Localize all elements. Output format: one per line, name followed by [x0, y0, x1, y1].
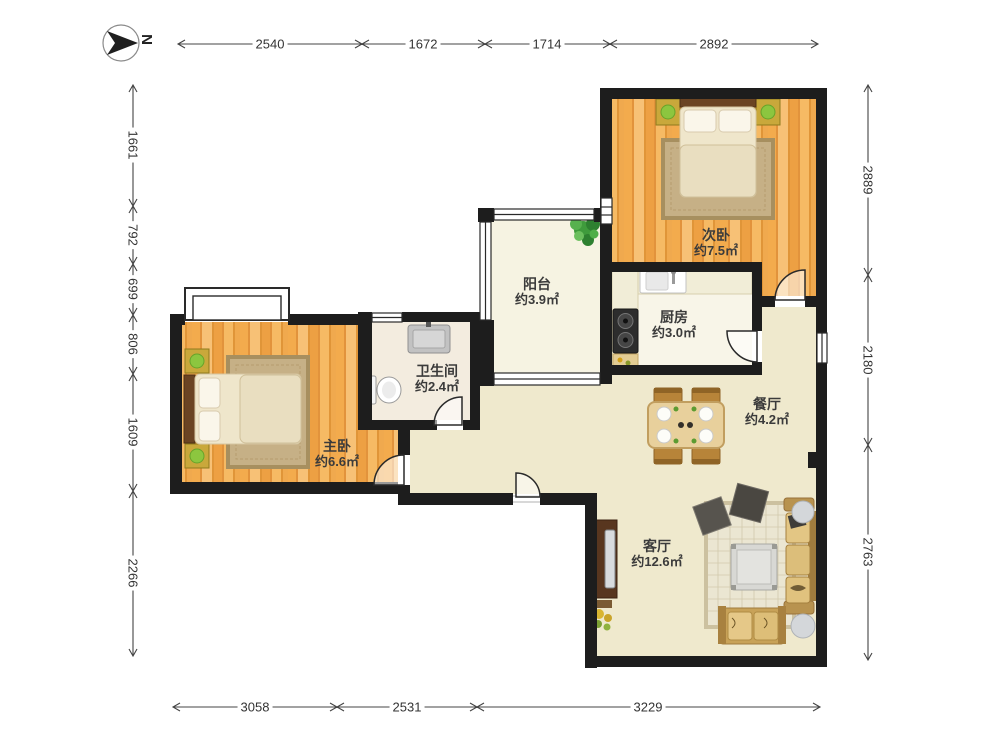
dimension-top-2: 1672 [406, 37, 441, 52]
double-bed [184, 374, 301, 444]
bathroom-window [372, 313, 402, 322]
floor-plan: N 次卧 约7.5㎡ 阳台 约3.9㎡ 厨房 约3.0㎡ 餐厅 约4.2㎡ 卫生… [0, 0, 1000, 750]
secondary-bedroom-furniture [656, 95, 780, 218]
dimension-bottom-3: 3229 [631, 700, 666, 715]
north-compass [103, 25, 139, 61]
balcony-bottom-window [494, 373, 600, 385]
dining-window [817, 333, 827, 363]
room-area: 约12.6㎡ [631, 554, 682, 570]
balcony-left-window [480, 222, 491, 320]
north-arrow-icon [107, 31, 138, 55]
stove [613, 309, 638, 353]
toilet [367, 376, 401, 404]
room-area: 约3.0㎡ [652, 325, 696, 341]
secondary-bedroom-window [601, 198, 612, 224]
room-label-master-bedroom: 主卧 约6.6㎡ [315, 438, 359, 470]
dimension-bottom-2: 2531 [390, 700, 425, 715]
compass-north-label: N [138, 34, 155, 45]
dimension-left-4: 806 [126, 330, 141, 358]
room-name: 卫生间 [415, 363, 459, 379]
master-bedroom-furniture [184, 349, 308, 468]
room-area: 约3.9㎡ [515, 292, 559, 308]
dimension-top-4: 2892 [697, 37, 732, 52]
room-name: 次卧 [694, 227, 738, 243]
coffee-table [731, 544, 777, 590]
room-name: 主卧 [315, 438, 359, 454]
room-area: 约7.5㎡ [694, 243, 738, 259]
dimension-top-3: 1714 [530, 37, 565, 52]
sink [640, 269, 686, 293]
room-name: 阳台 [515, 276, 559, 292]
dimension-left-1: 1661 [126, 128, 141, 163]
room-name: 客厅 [631, 538, 682, 554]
room-name: 餐厅 [745, 396, 789, 412]
room-label-bathroom: 卫生间 约2.4㎡ [415, 363, 459, 395]
room-area: 约4.2㎡ [745, 412, 789, 428]
dimension-bottom-1: 3058 [238, 700, 273, 715]
dimension-right-2: 2180 [861, 343, 876, 378]
room-area: 约6.6㎡ [315, 454, 359, 470]
dimension-left-3: 699 [126, 275, 141, 303]
dimension-right-3: 2763 [861, 535, 876, 570]
side-table [791, 614, 815, 638]
room-label-kitchen: 厨房 约3.0㎡ [652, 309, 696, 341]
bay-window [185, 288, 289, 320]
double-bed [680, 95, 756, 197]
dimension-right-1: 2889 [861, 163, 876, 198]
floor-plan-drawing [0, 0, 1000, 750]
loveseat [718, 606, 786, 644]
dimension-left-2: 792 [126, 221, 141, 249]
room-area: 约2.4㎡ [415, 379, 459, 395]
room-label-secondary-bedroom: 次卧 约7.5㎡ [694, 227, 738, 259]
dimension-left-5: 1609 [126, 415, 141, 450]
dimension-left-6: 2266 [126, 556, 141, 591]
room-label-dining-room: 餐厅 约4.2㎡ [745, 396, 789, 428]
room-name: 厨房 [652, 309, 696, 325]
dimension-top-1: 2540 [253, 37, 288, 52]
side-table [792, 501, 814, 523]
balcony-top-window [494, 209, 594, 220]
room-label-balcony: 阳台 约3.9㎡ [515, 276, 559, 308]
room-label-living-room: 客厅 约12.6㎡ [631, 538, 682, 570]
